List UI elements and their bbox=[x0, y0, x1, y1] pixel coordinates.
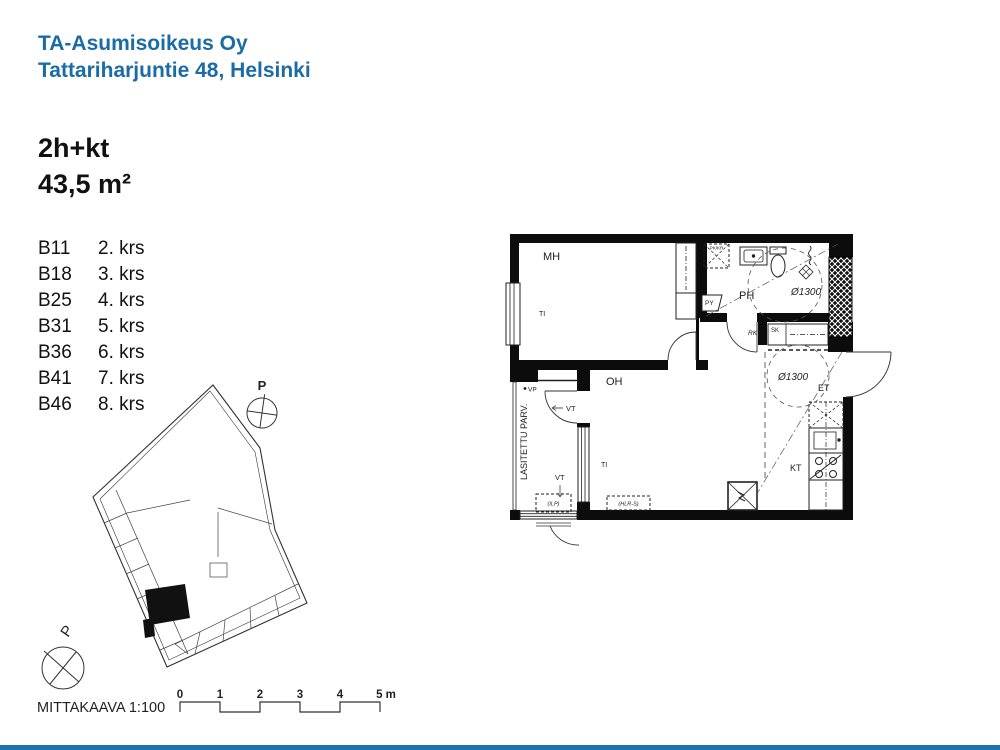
vent-label-1: VT bbox=[566, 404, 576, 413]
unit-floor: 5. krs bbox=[98, 314, 144, 340]
entry-label: ET bbox=[818, 383, 830, 393]
site-interior-walls bbox=[104, 490, 298, 654]
duct-box bbox=[728, 482, 757, 510]
tick-3: 3 bbox=[297, 689, 303, 701]
floorplan-page: TA-Asumisoikeus Oy Tattariharjuntie 48, … bbox=[0, 0, 1000, 750]
unit-row: B36 6. krs bbox=[38, 340, 144, 366]
windows bbox=[506, 283, 589, 519]
unit-row: B25 4. krs bbox=[38, 288, 144, 314]
apartment-floor-plan: MH PH OH ET KT SK RK PY TI TI VT VT VP L… bbox=[505, 228, 895, 548]
highlighted-unit bbox=[143, 584, 190, 638]
bathroom-door bbox=[727, 322, 757, 352]
vent-arrow-down bbox=[558, 485, 563, 497]
footer-accent-bar bbox=[0, 745, 1000, 750]
water-point-dot bbox=[524, 387, 527, 390]
tick-0: 0 bbox=[177, 689, 183, 701]
tick-2: 2 bbox=[257, 689, 263, 701]
washer-reservation-label: PK/KR bbox=[710, 246, 724, 251]
tick-1: 1 bbox=[217, 689, 224, 701]
sink bbox=[740, 247, 767, 265]
shower bbox=[799, 246, 813, 279]
tick-4: 4 bbox=[337, 689, 344, 701]
bedroom-door bbox=[668, 332, 696, 360]
kitchen-fixtures bbox=[809, 402, 843, 510]
apartment-type: 2h+kt bbox=[38, 130, 131, 166]
apartment-info: 2h+kt 43,5 m² bbox=[38, 130, 131, 202]
company-name: TA-Asumisoikeus Oy bbox=[38, 30, 311, 57]
neighbor-balcony-door-arc bbox=[550, 526, 579, 545]
unit-row: B31 5. krs bbox=[38, 314, 144, 340]
centerline-bathroom bbox=[706, 244, 838, 316]
reservation-2-label: (HLR-S) bbox=[618, 502, 638, 508]
north-compass-bottom: P bbox=[42, 622, 84, 689]
turning-circle-label-2: Ø1300 bbox=[777, 372, 808, 383]
site-outline bbox=[93, 385, 307, 667]
scale-ticks: 0 1 2 3 4 5 m bbox=[177, 689, 396, 701]
unit-row: B18 3. krs bbox=[38, 262, 144, 288]
heatpump-label: (ILP) bbox=[548, 502, 560, 508]
north-label-bottom: P bbox=[57, 622, 77, 640]
window-label-2: TI bbox=[601, 462, 607, 469]
scale-bar: 0 1 2 3 4 5 m bbox=[30, 688, 410, 718]
unit-row: B11 2. krs bbox=[38, 236, 144, 262]
entrance-door bbox=[846, 352, 891, 397]
room-labels: MH PH OH ET KT SK RK PY TI TI VT VT VP L… bbox=[519, 246, 830, 508]
apartment-area: 43,5 m² bbox=[38, 166, 131, 202]
glazed-balcony-label: LASITETTU PARV. bbox=[519, 404, 529, 480]
turning-circle-label-1: Ø1300 bbox=[790, 287, 821, 298]
balcony-glazing bbox=[513, 382, 516, 510]
tick-5: 5 m bbox=[376, 689, 396, 701]
water-point-label: VP bbox=[528, 387, 537, 394]
wardrobe-2 bbox=[676, 293, 696, 319]
bathroom-label: PH bbox=[739, 290, 754, 302]
living-room-label: OH bbox=[606, 376, 623, 388]
vent-label-2: VT bbox=[555, 473, 565, 482]
unit-code: B11 bbox=[38, 236, 98, 262]
unit-floor: 6. krs bbox=[98, 340, 144, 366]
north-label-top: P bbox=[258, 378, 267, 393]
company-header: TA-Asumisoikeus Oy Tattariharjuntie 48, … bbox=[38, 30, 311, 84]
north-compass-top: P bbox=[245, 378, 279, 430]
unit-code: B18 bbox=[38, 262, 98, 288]
unit-floor: 3. krs bbox=[98, 262, 144, 288]
electrical-label: RK bbox=[748, 330, 758, 337]
vent-arrow-left bbox=[552, 406, 563, 411]
scale-bar-line bbox=[180, 702, 380, 712]
unit-floor: 2. krs bbox=[98, 236, 144, 262]
site-plan: P P bbox=[40, 372, 330, 697]
ventilation-shaft bbox=[829, 257, 852, 337]
unit-floor: 4. krs bbox=[98, 288, 144, 314]
window-label-1: TI bbox=[539, 311, 545, 318]
closet-label: SK bbox=[771, 328, 779, 334]
bedroom-label: MH bbox=[543, 251, 560, 263]
kitchen-label: KT bbox=[790, 463, 802, 473]
living-room-window bbox=[578, 427, 589, 502]
bedroom-window bbox=[506, 283, 520, 345]
street-address: Tattariharjuntie 48, Helsinki bbox=[38, 57, 311, 84]
unit-code: B31 bbox=[38, 314, 98, 340]
laundry-label: PY bbox=[705, 300, 714, 307]
unit-code: B36 bbox=[38, 340, 98, 366]
toilet bbox=[770, 247, 786, 277]
unit-code: B25 bbox=[38, 288, 98, 314]
